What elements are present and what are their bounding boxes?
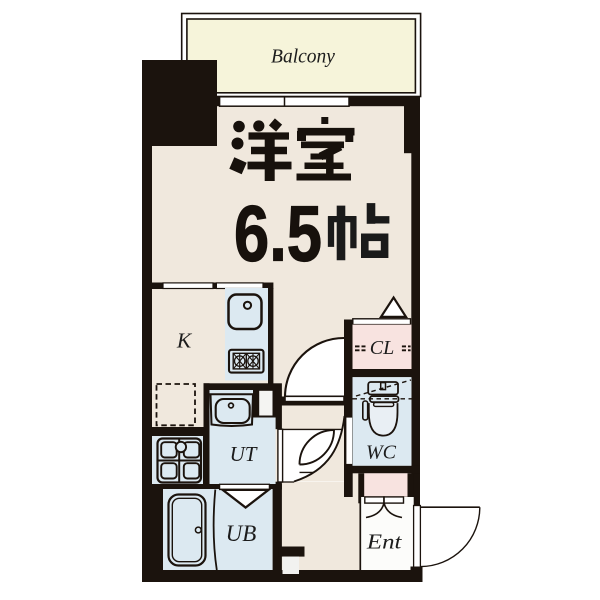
svg-text:UB: UB <box>226 521 257 546</box>
svg-text:WC: WC <box>366 442 397 464</box>
svg-text:K: K <box>176 329 193 353</box>
svg-text:UT: UT <box>230 442 258 466</box>
svg-text:Balcony: Balcony <box>271 47 335 68</box>
svg-text:CL: CL <box>370 337 394 359</box>
svg-text:Ent: Ent <box>366 530 403 554</box>
svg-text:6.5: 6.5 <box>234 189 322 278</box>
